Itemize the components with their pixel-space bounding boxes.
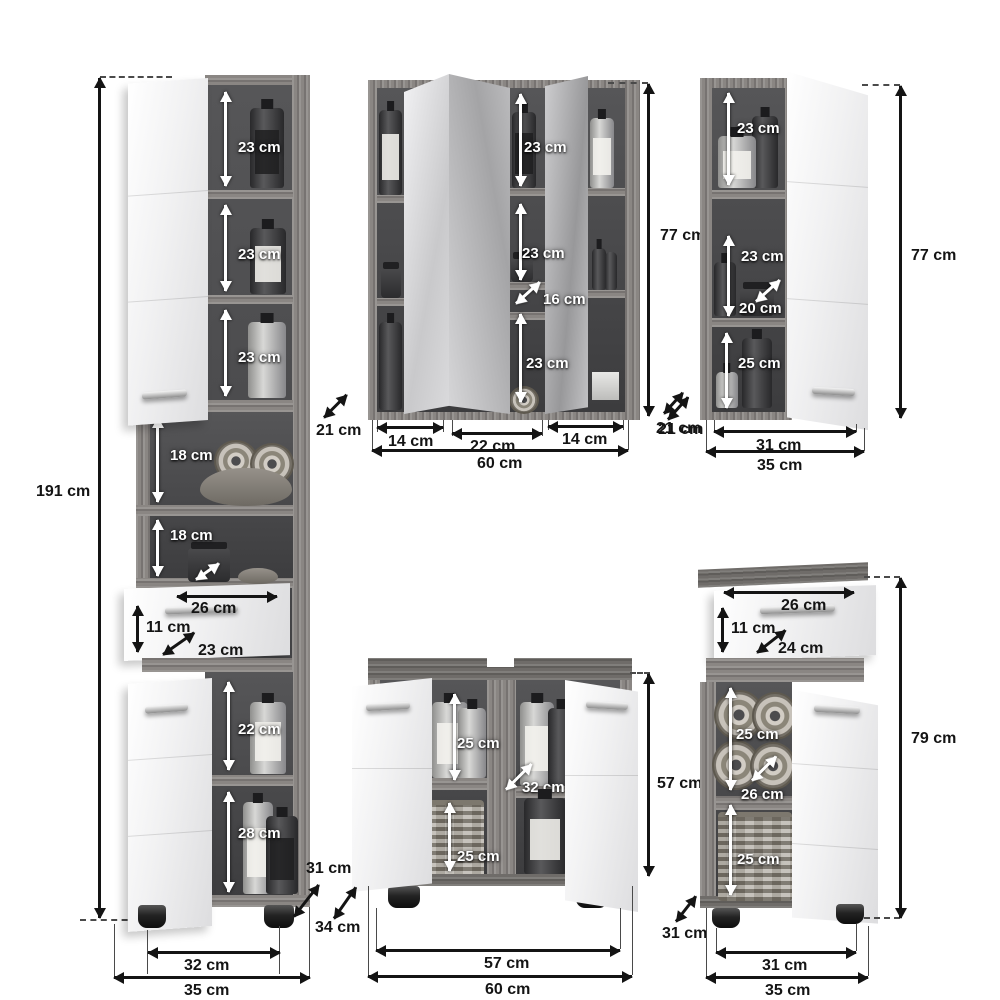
dim-label: 25 cm — [736, 727, 779, 742]
dim-label: 23 cm — [524, 140, 567, 155]
dim-label: 23 cm — [238, 247, 281, 262]
dim-arrow — [224, 205, 227, 291]
dim-arrow — [224, 92, 227, 186]
small-dark-bottle — [605, 252, 617, 290]
dim-label-width-left: 14 cm — [388, 434, 433, 450]
dim-label: 23 cm — [522, 246, 565, 261]
dim-arrow-depth-left — [323, 394, 348, 419]
sink-cabinet-right-door — [565, 680, 638, 912]
dim-arrow-inner-width — [714, 430, 856, 433]
dim-label: 18 cm — [170, 528, 213, 543]
cabinet-top-board — [698, 562, 868, 587]
dim-label: 26 cm — [191, 601, 236, 617]
shelf — [377, 298, 405, 306]
bathroom-set-dimension-diagram: 191 cm 23 cm 23 cm 23 cm 18 cm 18 cm — [0, 0, 1000, 1000]
dim-label: 25 cm — [738, 356, 781, 371]
dim-arrow — [729, 805, 732, 895]
dim-label: 18 cm — [170, 448, 213, 463]
dim-label-total-height: 79 cm — [911, 731, 956, 747]
dim-arrow-inner-width — [148, 951, 280, 954]
drawer-rail-board — [142, 658, 292, 672]
dim-arrow-width-right — [548, 425, 623, 428]
dim-arrow — [453, 694, 456, 780]
wall-cabinet-door — [787, 66, 868, 432]
dim-extension — [114, 924, 115, 976]
dim-label-inner-width: 31 cm — [762, 958, 807, 974]
shelf — [205, 775, 293, 786]
dim-label-outer-width: 35 cm — [765, 983, 810, 999]
dim-label-shelf-depth: 26 cm — [741, 787, 784, 802]
dim-label-depth-left: 21 cm — [316, 423, 361, 439]
dim-arrow-drawer-width — [724, 591, 854, 594]
dim-label: 23 cm — [526, 356, 569, 371]
dim-label-inner-width: 57 cm — [484, 956, 529, 972]
dim-label-outer-width: 60 cm — [485, 982, 530, 998]
dim-label-total-height: 191 cm — [36, 484, 90, 500]
niche-side — [136, 412, 150, 586]
dim-extension — [376, 908, 377, 949]
dim-arrow — [156, 520, 159, 576]
door-handle — [586, 701, 628, 710]
shelf — [205, 190, 293, 199]
dim-label-total-height: 77 cm — [911, 248, 956, 264]
dim-label-drawer-width: 26 cm — [781, 598, 826, 614]
lotion-bottle — [250, 702, 286, 774]
shelf — [136, 505, 293, 516]
dim-arrow-height — [647, 674, 650, 876]
dim-arrow-depth — [675, 895, 697, 922]
dim-arrow-drawer-width — [177, 595, 277, 598]
dim-arrow-height — [647, 84, 650, 416]
cabinet-foot — [388, 886, 420, 908]
dim-arrow-inner-width — [376, 949, 620, 952]
cabinet-foot — [712, 908, 740, 928]
dim-arrow-width-center — [452, 432, 542, 435]
conditioner-bottle — [379, 110, 402, 195]
shelf — [585, 188, 625, 196]
dim-arrow-inner-width — [716, 951, 856, 954]
siphon-cutout — [487, 658, 514, 667]
door-handle — [812, 387, 855, 396]
dim-arrow-outer-width — [114, 976, 310, 979]
dim-label: 23 cm — [737, 121, 780, 136]
dim-extension — [706, 908, 707, 976]
dim-label-depth: 31 cm — [306, 861, 351, 877]
dim-label: 23 cm — [238, 140, 281, 155]
dim-label: 23 cm — [741, 249, 784, 264]
drawer-rail-board — [706, 658, 864, 682]
dim-label-depth: 21 cm — [658, 422, 703, 438]
dim-label-inner-width: 32 cm — [184, 958, 229, 974]
dim-label-shelf-depth: 20 cm — [739, 301, 782, 316]
dim-extension — [620, 908, 621, 949]
door-handle — [366, 702, 410, 711]
sink-cabinet-left-door — [352, 678, 432, 892]
dim-label: 23 cm — [198, 643, 243, 659]
shelf — [377, 195, 405, 203]
dim-label-total-width: 60 cm — [477, 456, 522, 472]
dim-label-depth: 31 cm — [662, 926, 707, 942]
dim-label: 16 cm — [543, 292, 586, 307]
soap-dispenser — [590, 118, 614, 188]
cabinet-side — [292, 75, 310, 907]
floor-cabinet-door — [792, 686, 878, 926]
dim-arrow — [729, 688, 732, 790]
dim-arrow-total-width — [372, 449, 628, 452]
dim-arrow-height — [98, 78, 101, 918]
mirror-door-fold-left — [404, 74, 449, 414]
dim-arrow-outer-width — [706, 450, 864, 453]
dim-label-width-right: 14 cm — [562, 432, 607, 448]
dim-label-total-height: 77 cm — [660, 228, 705, 244]
dim-label: 25 cm — [737, 852, 780, 867]
pump-bottle — [742, 338, 772, 408]
dim-arrow — [224, 310, 227, 396]
tall-cabinet-lower-door — [128, 678, 212, 932]
dim-arrow — [519, 94, 522, 186]
small-dark-bottle — [592, 248, 606, 290]
dim-label-outer-width: 35 cm — [184, 983, 229, 999]
dim-label-drawer-depth: 24 cm — [778, 641, 823, 657]
shelf — [508, 188, 546, 196]
cabinet-foot — [138, 905, 166, 928]
dark-bottle — [379, 322, 402, 410]
door-handle — [145, 704, 188, 714]
dim-arrow-depth — [667, 396, 689, 420]
dim-arrow-width-left — [377, 426, 443, 429]
shelf — [205, 295, 293, 304]
dim-label: 28 cm — [238, 826, 281, 841]
small-jar — [381, 268, 401, 298]
dim-label: 25 cm — [457, 849, 500, 864]
dim-extension — [368, 886, 369, 975]
dim-label-drawer-height: 11 cm — [731, 621, 775, 637]
dim-label: 25 cm — [457, 736, 500, 751]
dim-label-width-center: 22 cm — [470, 439, 515, 455]
door-handle — [142, 389, 187, 399]
soap-dish — [238, 568, 278, 584]
dim-leader — [100, 76, 172, 78]
dim-label-depth: 34 cm — [315, 920, 360, 936]
shelf — [585, 290, 625, 298]
dim-label-total-height: 57 cm — [657, 776, 702, 792]
dim-arrow-height — [899, 578, 902, 918]
dim-arrow — [227, 792, 230, 892]
dim-arrow-drawer-height — [721, 608, 724, 652]
dim-arrow — [227, 682, 230, 770]
dim-arrow — [725, 333, 728, 408]
dim-label: 22 cm — [238, 722, 281, 737]
dim-arrow — [519, 204, 522, 280]
giant-dark-bottle — [524, 798, 566, 874]
mirror-door-fold-right — [449, 74, 510, 414]
towel-bowl — [200, 468, 292, 506]
dim-arrow — [727, 93, 730, 185]
shelf — [205, 400, 293, 412]
dim-label-outer-width: 35 cm — [757, 458, 802, 474]
shelf — [712, 190, 785, 199]
dim-arrow-outer-width — [706, 976, 868, 979]
dim-arrow-height — [899, 86, 902, 418]
dim-extension — [868, 926, 869, 976]
cabinet-foot — [836, 904, 864, 924]
dim-extension — [632, 886, 633, 975]
dim-label: 23 cm — [238, 350, 281, 365]
tall-cabinet-upper-door — [128, 78, 208, 426]
shelf — [712, 318, 785, 327]
dim-arrow — [519, 314, 522, 402]
dim-arrow — [156, 418, 159, 502]
dim-extension — [309, 907, 310, 976]
dim-arrow-drawer-height — [136, 606, 139, 652]
dim-arrow — [727, 236, 730, 316]
cabinet-foot — [264, 905, 294, 928]
dim-arrow-outer-width — [368, 975, 632, 978]
dim-arrow-depth — [333, 887, 357, 920]
door-handle — [814, 705, 860, 714]
white-box — [592, 372, 619, 400]
dim-arrow — [448, 803, 451, 871]
